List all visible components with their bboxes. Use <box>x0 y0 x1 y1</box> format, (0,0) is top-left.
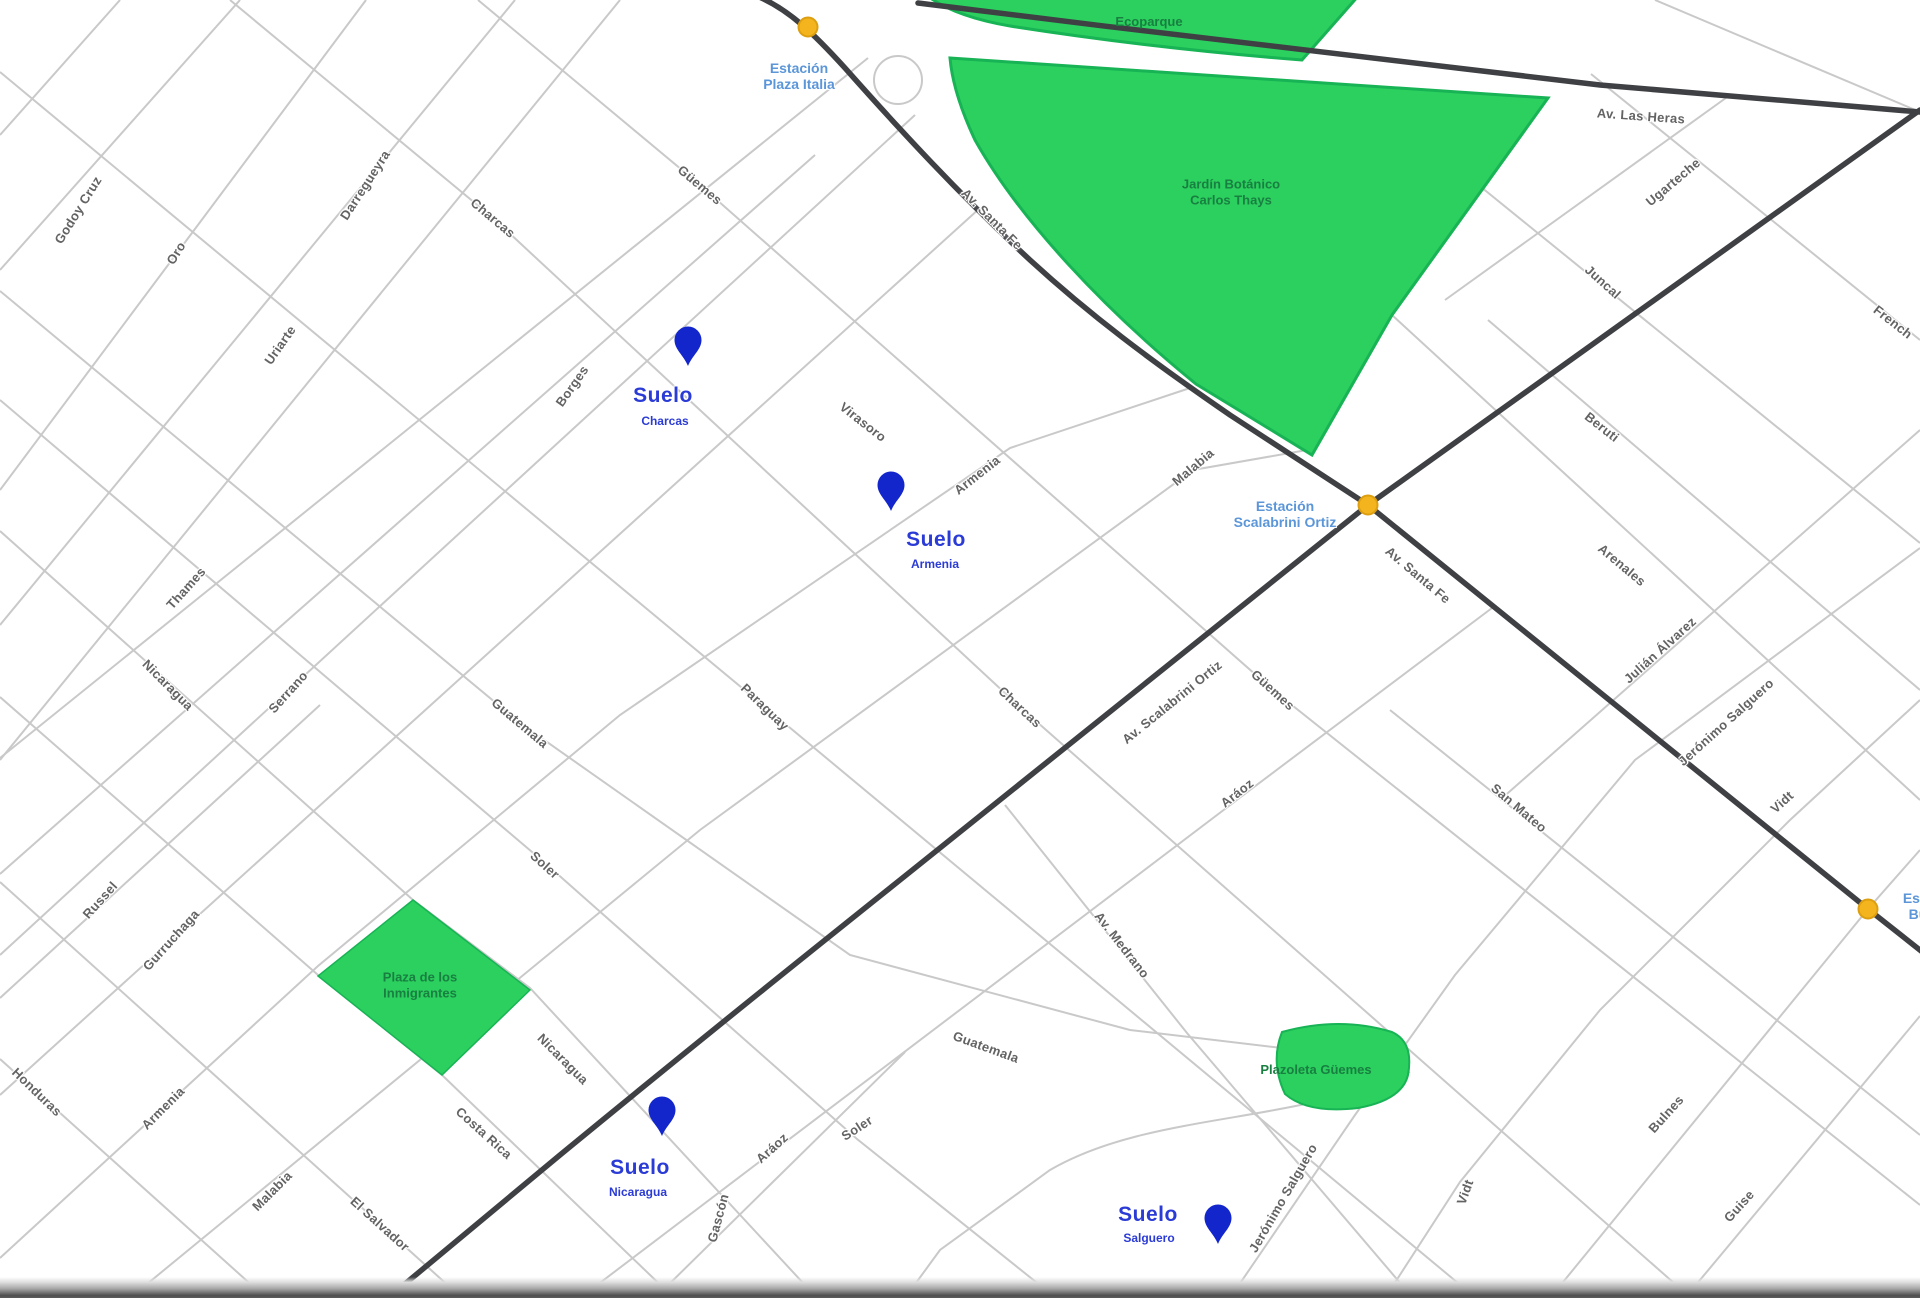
station-dot[interactable] <box>1858 899 1879 920</box>
suelo-pin-charcas[interactable] <box>673 325 703 367</box>
plaza-italia-roundabout <box>874 56 922 104</box>
station-dot[interactable] <box>1358 495 1379 516</box>
park-shape-plaza-inmigrantes[interactable] <box>318 900 530 1075</box>
park-shape-jardin-botanico[interactable] <box>950 58 1548 455</box>
bottom-edge-bar <box>0 1277 1920 1298</box>
station-dot[interactable] <box>798 17 819 38</box>
map-graphics <box>0 0 1920 1298</box>
suelo-pin-armenia[interactable] <box>876 470 906 512</box>
suelo-pin-nicaragua[interactable] <box>647 1095 677 1137</box>
park-shape-plazoleta-guemes[interactable] <box>1277 1024 1410 1109</box>
map-canvas[interactable]: Godoy CruzOroDarregueyraUriarteBorgesCha… <box>0 0 1920 1298</box>
suelo-pin-salguero[interactable] <box>1203 1203 1233 1245</box>
